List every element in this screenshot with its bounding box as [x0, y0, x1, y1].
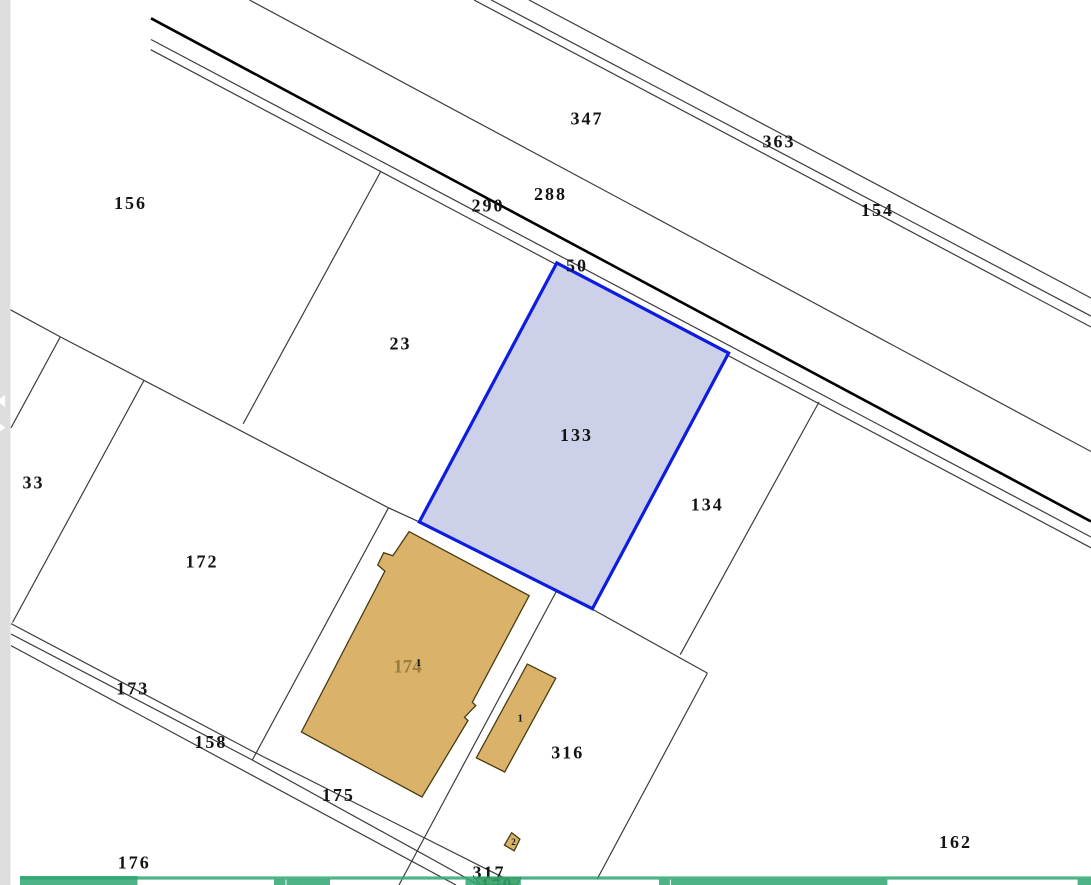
svg-text:176: 176 — [118, 852, 151, 872]
svg-text:347: 347 — [571, 108, 604, 128]
svg-text:162: 162 — [939, 832, 972, 852]
svg-text:288: 288 — [534, 184, 567, 204]
svg-text:175: 175 — [322, 785, 355, 805]
svg-text:33: 33 — [23, 473, 45, 493]
svg-text:133: 133 — [560, 425, 593, 445]
svg-text:23: 23 — [390, 334, 412, 354]
svg-text:173: 173 — [116, 679, 149, 699]
svg-text:1: 1 — [518, 712, 524, 724]
svg-text:172: 172 — [186, 551, 219, 571]
svg-text:156: 156 — [114, 193, 147, 213]
svg-text:50: 50 — [566, 256, 588, 276]
svg-text:1: 1 — [416, 658, 421, 669]
svg-text:158: 158 — [194, 732, 227, 752]
svg-text:2: 2 — [511, 837, 516, 847]
svg-text:290: 290 — [472, 196, 505, 216]
svg-text:154: 154 — [861, 200, 894, 220]
svg-text:363: 363 — [763, 132, 796, 152]
svg-text:316: 316 — [551, 742, 584, 762]
svg-text:134: 134 — [691, 495, 724, 515]
